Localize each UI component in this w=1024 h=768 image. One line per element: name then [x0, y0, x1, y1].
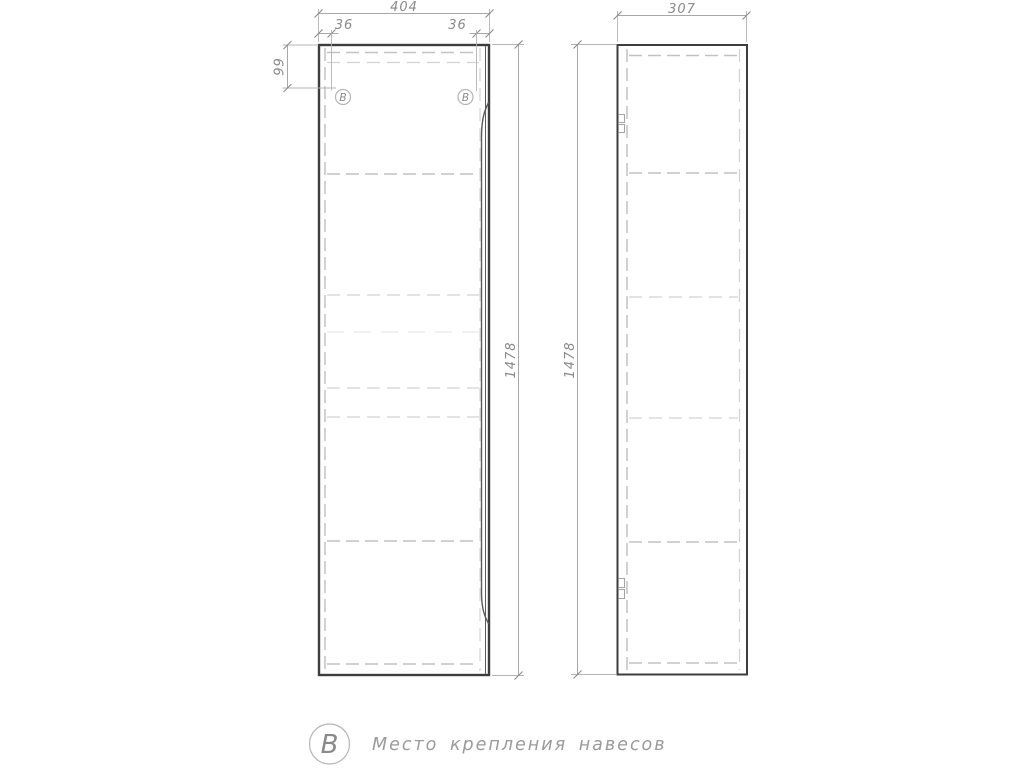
dim-hanger-top-offset-label: 99 [273, 57, 288, 76]
side-hanger-bracket-bottom-2 [619, 590, 625, 599]
side-view [618, 45, 748, 675]
dim-front-height-label: 1478 [504, 341, 519, 378]
side-hanger-bracket-top-1 [619, 115, 625, 123]
dim-hanger-offset-right-label: 36 [448, 18, 467, 33]
legend-symbol: B [321, 730, 339, 760]
callout-label-right: B [462, 92, 469, 104]
side-hanger-bracket-top-2 [619, 125, 625, 133]
dim-hanger-offset-right: 36 [448, 18, 493, 91]
legend-description: Место крепления навесов [372, 735, 667, 755]
cabinet-drawing: B B 404 [0, 0, 1024, 768]
dim-side-depth: 307 [614, 2, 751, 42]
callout-label-left: B [339, 92, 346, 104]
dim-hanger-offset-left-label: 36 [335, 18, 354, 33]
side-view-outline [618, 45, 748, 675]
side-hanger-bracket-bottom-1 [619, 579, 625, 588]
dim-side-depth-label: 307 [668, 2, 696, 17]
legend: B Место крепления навесов [310, 724, 667, 764]
front-view: B B [319, 45, 489, 675]
dim-side-height-label: 1478 [563, 341, 578, 378]
dim-hanger-top-offset: 99 [273, 41, 337, 92]
dim-hanger-offset-left: 36 [315, 18, 354, 91]
dim-front-height: 1478 [492, 41, 524, 680]
front-view-outline [319, 45, 489, 675]
dim-side-height: 1478 [563, 41, 616, 679]
dim-front-width-label: 404 [390, 0, 418, 15]
technical-drawing-page: B B 404 [0, 0, 1024, 768]
